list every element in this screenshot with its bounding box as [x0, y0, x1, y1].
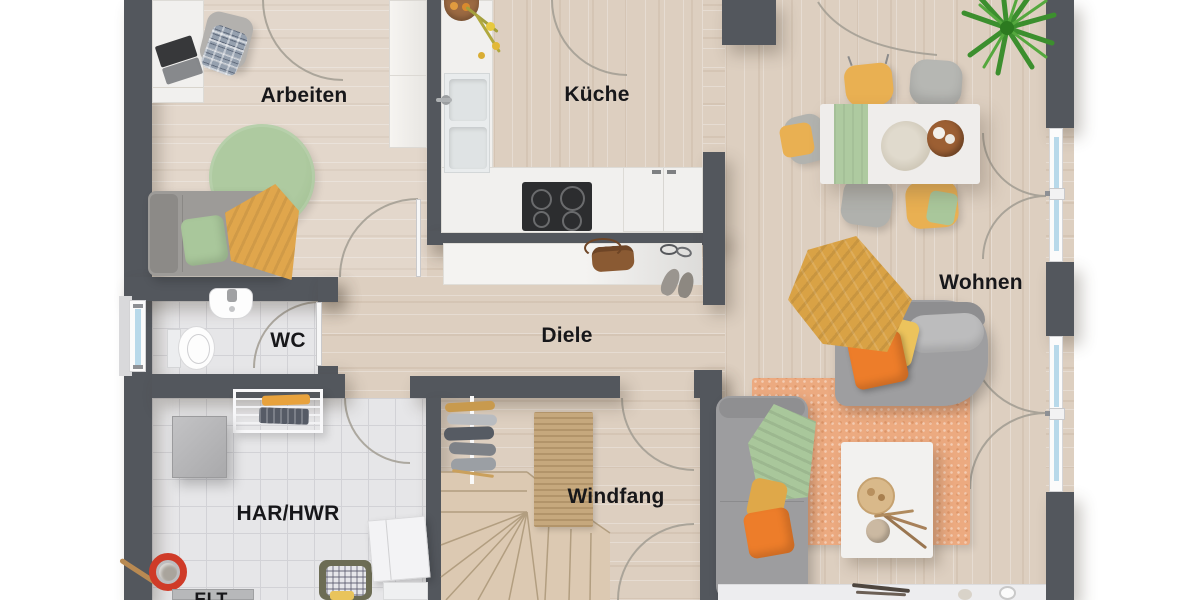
- tray-item: [867, 488, 875, 496]
- room-label-arbeiten: Arbeiten: [261, 84, 348, 108]
- room-label-wohnen: Wohnen: [939, 271, 1023, 295]
- dining-chair-yellow-top: [843, 62, 895, 109]
- doormat: [534, 412, 593, 527]
- room-label-har-hwr: HAR/HWR: [237, 502, 340, 526]
- coffee-table-tray: [857, 477, 895, 515]
- lowboard-item-cup: [999, 586, 1016, 600]
- vase: [866, 519, 890, 543]
- room-label-elt: ELT: [194, 590, 227, 600]
- coat-gray: [447, 413, 497, 426]
- lowboard-item-plate: [958, 589, 972, 600]
- chair-towel-yellow: [778, 121, 815, 158]
- coat-dark: [444, 426, 494, 441]
- room-label-diele: Diele: [541, 324, 592, 348]
- bowl-flowers: [933, 127, 945, 139]
- tray-item: [878, 494, 885, 501]
- room-label-wc: WC: [270, 329, 305, 353]
- coat-mid: [449, 442, 497, 456]
- dining-chair-gray-bottom: [839, 177, 895, 230]
- decor-bowl: [927, 120, 964, 157]
- dried-flower-centerpiece: [881, 121, 931, 171]
- room-label-windfang: Windfang: [567, 485, 664, 509]
- bowl-flowers: [945, 134, 955, 144]
- room-label-kueche: Küche: [564, 83, 629, 107]
- table-runner-green: [834, 104, 868, 184]
- chair-cloth-green: [925, 190, 958, 226]
- sofa-side-orange-pillow: [742, 506, 795, 559]
- floor-plan: Arbeiten Küche Wohnen WC Diele HAR/HWR W…: [0, 0, 1200, 600]
- palm-plant: [950, 0, 1065, 85]
